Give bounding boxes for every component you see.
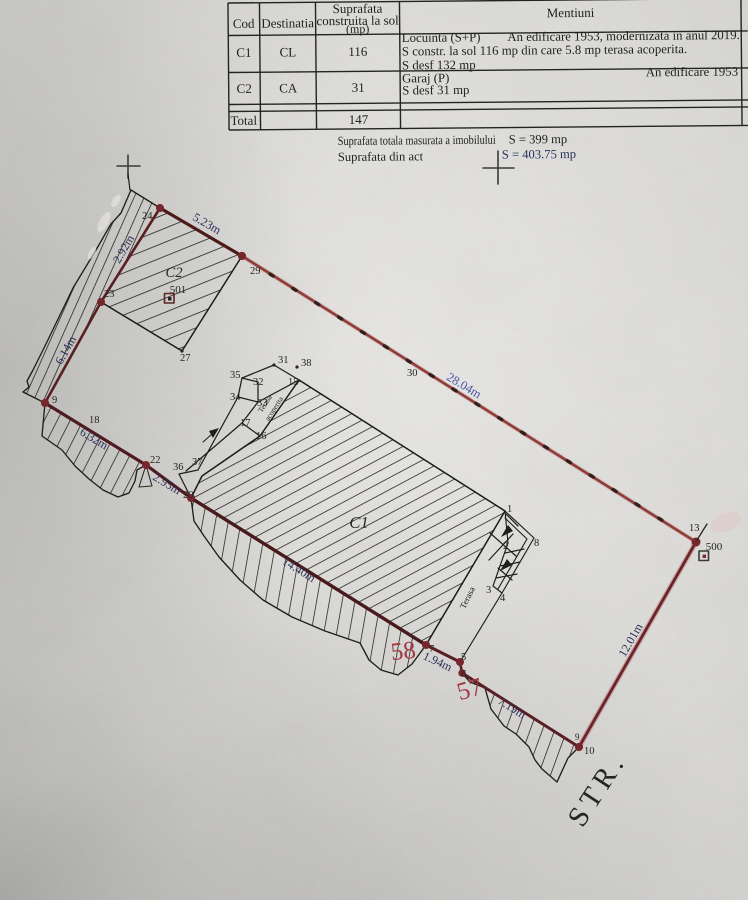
svg-text:500: 500: [706, 541, 723, 553]
svg-text:23: 23: [104, 289, 115, 300]
svg-text:147: 147: [349, 112, 369, 127]
svg-text:20: 20: [183, 490, 194, 501]
svg-text:17: 17: [240, 418, 251, 429]
svg-text:37: 37: [192, 457, 203, 468]
svg-text:116: 116: [348, 44, 368, 59]
svg-text:Destinatia: Destinatia: [261, 15, 314, 30]
svg-text:(mp): (mp): [346, 22, 369, 36]
svg-text:29: 29: [250, 266, 261, 277]
svg-text:Suprafata din act: Suprafata din act: [338, 149, 424, 164]
svg-text:13: 13: [689, 523, 700, 534]
svg-text:36: 36: [173, 462, 184, 473]
svg-text:31: 31: [278, 355, 289, 366]
svg-text:C2: C2: [166, 265, 183, 281]
svg-text:22: 22: [150, 455, 161, 466]
svg-text:32: 32: [253, 377, 264, 388]
svg-text:501: 501: [170, 284, 187, 296]
svg-text:15: 15: [288, 377, 299, 388]
svg-text:Total: Total: [230, 113, 257, 128]
svg-text:24: 24: [142, 211, 153, 222]
svg-text:S desf 31 mp: S desf 31 mp: [402, 83, 469, 98]
svg-text:9: 9: [52, 395, 57, 406]
svg-text:S = 399 mp: S = 399 mp: [509, 132, 568, 147]
svg-text:34: 34: [230, 392, 241, 403]
svg-text:35: 35: [230, 370, 241, 381]
svg-text:An edificare 1953: An edificare 1953: [646, 65, 739, 80]
svg-text:8: 8: [534, 538, 539, 549]
svg-text:C1: C1: [349, 513, 368, 532]
svg-text:3: 3: [486, 585, 491, 596]
svg-text:Locuinta (S+P): Locuinta (S+P): [402, 30, 481, 45]
svg-text:4: 4: [500, 593, 506, 604]
svg-text:9: 9: [575, 732, 580, 742]
svg-text:58: 58: [389, 637, 417, 666]
svg-text:10: 10: [584, 746, 595, 757]
svg-text:1: 1: [507, 504, 512, 515]
svg-text:Suprafata totala masurata a im: Suprafata totala masurata a imobilului: [338, 133, 497, 148]
svg-text:2: 2: [503, 541, 508, 552]
svg-text:30: 30: [407, 368, 418, 379]
svg-text:Cod: Cod: [233, 16, 255, 31]
svg-text:S = 403.75 mp: S = 403.75 mp: [502, 147, 576, 162]
svg-text:27: 27: [180, 353, 191, 364]
svg-text:38: 38: [301, 358, 312, 369]
svg-text:16: 16: [256, 431, 267, 442]
svg-text:CA: CA: [279, 80, 298, 95]
svg-text:Mentiuni: Mentiuni: [547, 5, 595, 20]
svg-text:C2: C2: [237, 81, 252, 96]
svg-text:C1: C1: [236, 45, 251, 60]
svg-text:CL: CL: [280, 44, 297, 59]
svg-text:31: 31: [352, 80, 365, 95]
svg-text:5: 5: [461, 652, 466, 663]
svg-text:18: 18: [89, 415, 100, 426]
svg-text:S constr. la sol 116 mp din ca: S constr. la sol 116 mp din care 5.8 mp …: [402, 42, 687, 58]
